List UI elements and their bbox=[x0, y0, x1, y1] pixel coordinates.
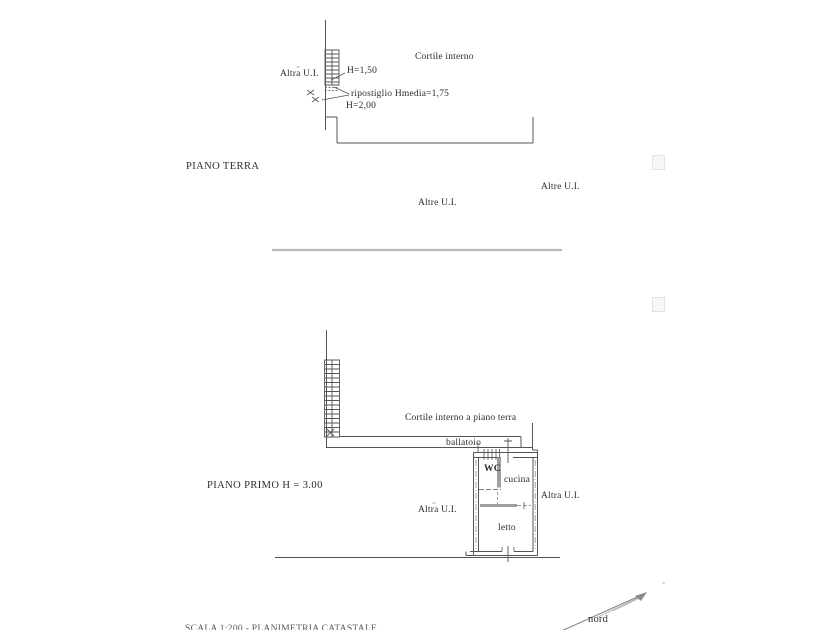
first-floor-title: PIANO PRIMO H = 3.00 bbox=[207, 480, 323, 492]
ff-ballatoio-band bbox=[326, 437, 532, 448]
faint-margin-mark-lower bbox=[652, 297, 665, 312]
gf-height-150-annotation: H=1,50 bbox=[347, 66, 377, 76]
gf-ripostiglio-annotation: ripostiglio Hmedia=1,75 bbox=[351, 89, 449, 99]
ff-ballatoio-label: ballatoio bbox=[446, 438, 481, 448]
ff-cucina-label: cucina bbox=[504, 475, 530, 485]
gf-cortile-interno-label: Cortile interno bbox=[415, 52, 474, 62]
ff-apartment-walls bbox=[466, 438, 538, 562]
faint-margin-mark-upper bbox=[652, 155, 665, 170]
ff-courtyard-right-edge bbox=[533, 423, 538, 450]
gf-altra-ui-label: Altra U.I. bbox=[280, 69, 319, 79]
scan-speck bbox=[296, 66, 300, 68]
gf-leader-lines bbox=[322, 73, 349, 100]
ff-altra-ui-left-label: Altra U.I. bbox=[418, 505, 457, 515]
floorplan-document: PIANO TERRA Altra U.I. Cortile interno H… bbox=[0, 0, 840, 630]
scan-speck bbox=[432, 502, 436, 504]
scan-speck bbox=[662, 582, 665, 584]
gf-height-200-annotation: H=2,00 bbox=[346, 101, 376, 111]
altre-ui-lower-label: Altre U.I. bbox=[418, 198, 457, 208]
gf-courtyard-boundary bbox=[325, 117, 533, 143]
ff-letto-label: letto bbox=[498, 523, 516, 533]
ff-wc-label: WC bbox=[484, 464, 501, 474]
first-floor-plan bbox=[275, 330, 560, 562]
north-label: nord bbox=[588, 614, 608, 626]
clipped-footer-text: SCALA 1:200 - PLANIMETRIA CATASTALE bbox=[185, 624, 377, 630]
ff-cortile-interno-label: Cortile interno a piano terra bbox=[405, 413, 516, 423]
ff-altra-ui-right-label: Altra U.I. bbox=[541, 491, 580, 501]
gf-cross-marks bbox=[307, 90, 319, 102]
altre-ui-upper-label: Altre U.I. bbox=[541, 182, 580, 192]
ground-floor-plan bbox=[307, 20, 533, 143]
ground-floor-title: PIANO TERRA bbox=[186, 161, 259, 173]
